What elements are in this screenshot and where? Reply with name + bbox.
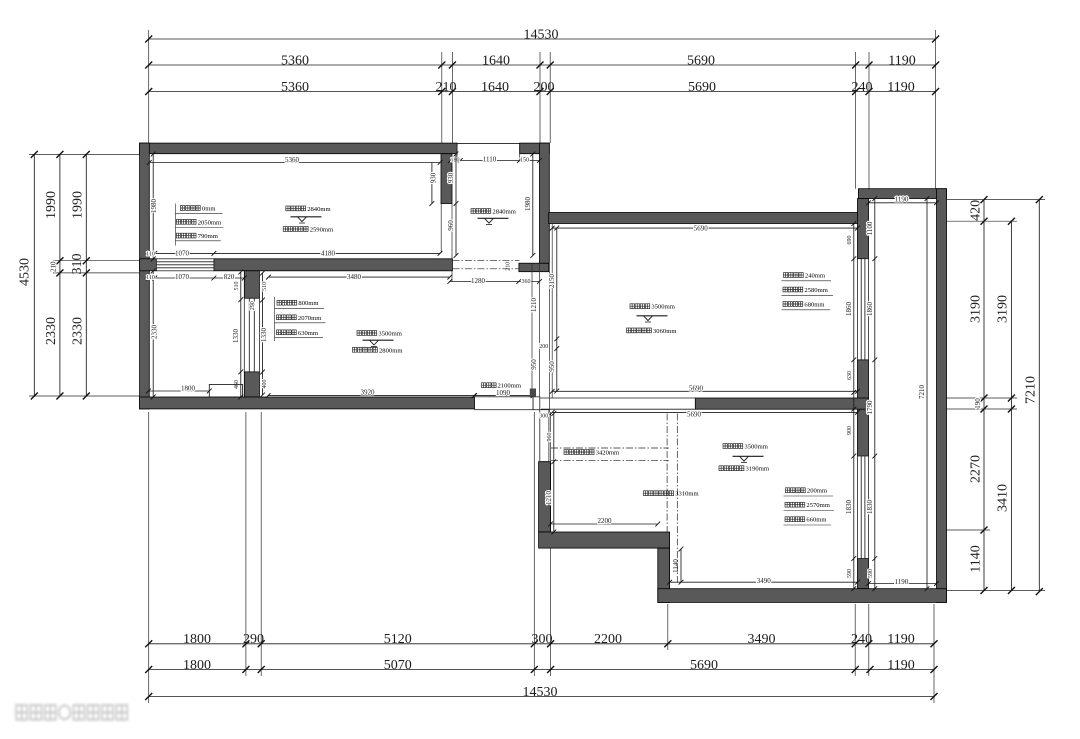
svg-text:660mm: 660mm xyxy=(806,517,827,524)
svg-text:2270: 2270 xyxy=(968,455,983,483)
svg-text:290: 290 xyxy=(250,301,256,310)
svg-text:5360: 5360 xyxy=(281,80,309,95)
svg-text:4180: 4180 xyxy=(321,250,336,258)
svg-text:400: 400 xyxy=(262,380,268,389)
svg-text:790mm: 790mm xyxy=(198,233,219,240)
svg-text:960: 960 xyxy=(447,220,455,231)
svg-text:7210: 7210 xyxy=(918,385,926,400)
svg-text:240: 240 xyxy=(851,632,872,647)
svg-text:1640: 1640 xyxy=(481,80,509,95)
svg-text:1800: 1800 xyxy=(183,658,211,673)
svg-text:3310mm: 3310mm xyxy=(675,491,699,498)
svg-text:1800: 1800 xyxy=(181,385,196,393)
svg-text:930: 930 xyxy=(447,172,455,183)
svg-text:1070: 1070 xyxy=(175,250,190,258)
svg-text:1070: 1070 xyxy=(175,273,190,281)
svg-text:2330: 2330 xyxy=(70,317,85,345)
svg-text:3500mm: 3500mm xyxy=(378,331,402,338)
svg-text:2570mm: 2570mm xyxy=(806,502,830,509)
svg-text:300: 300 xyxy=(539,414,548,420)
svg-text:3490: 3490 xyxy=(757,577,772,585)
svg-text:510: 510 xyxy=(262,282,268,291)
svg-text:950: 950 xyxy=(548,361,556,372)
svg-text:800mm: 800mm xyxy=(298,300,319,307)
svg-text:200mm: 200mm xyxy=(807,488,828,495)
svg-text:1800: 1800 xyxy=(183,632,211,647)
svg-text:690: 690 xyxy=(847,236,853,245)
svg-text:14530: 14530 xyxy=(524,27,559,42)
svg-text:5120: 5120 xyxy=(384,632,412,647)
svg-text:510: 510 xyxy=(234,282,240,291)
svg-text:680mm: 680mm xyxy=(804,302,825,309)
svg-text:5690: 5690 xyxy=(694,224,709,232)
svg-text:2330: 2330 xyxy=(151,325,159,340)
svg-text:3420mm: 3420mm xyxy=(596,450,620,457)
svg-text:4530: 4530 xyxy=(18,258,33,286)
svg-text:2840mm: 2840mm xyxy=(307,206,331,213)
svg-text:5690: 5690 xyxy=(690,658,718,673)
svg-text:630mm: 630mm xyxy=(298,330,319,337)
svg-text:2840mm: 2840mm xyxy=(492,209,516,216)
svg-text:1830: 1830 xyxy=(845,500,853,515)
svg-text:5070: 5070 xyxy=(384,658,412,673)
svg-text:1190: 1190 xyxy=(887,632,914,647)
svg-text:1790: 1790 xyxy=(866,400,874,415)
svg-text:200: 200 xyxy=(539,344,548,350)
svg-text:110: 110 xyxy=(146,275,155,281)
svg-text:630: 630 xyxy=(847,371,853,380)
svg-text:1140: 1140 xyxy=(672,559,680,573)
svg-text:1190: 1190 xyxy=(895,196,909,204)
svg-text:590: 590 xyxy=(868,569,874,578)
svg-text:5690: 5690 xyxy=(687,411,702,419)
svg-text:5690: 5690 xyxy=(688,80,716,95)
svg-text:5360: 5360 xyxy=(281,53,309,68)
svg-text:1330: 1330 xyxy=(260,328,268,343)
svg-text:1090: 1090 xyxy=(496,389,511,397)
svg-text:210: 210 xyxy=(506,262,512,271)
svg-text:930: 930 xyxy=(429,172,437,183)
svg-text:3190mm: 3190mm xyxy=(746,466,770,473)
svg-text:0mm: 0mm xyxy=(202,206,216,213)
svg-text:820: 820 xyxy=(224,273,235,281)
svg-text:1210: 1210 xyxy=(530,298,538,313)
svg-text:200: 200 xyxy=(534,80,555,95)
svg-text:240mm: 240mm xyxy=(805,273,826,280)
svg-text:180: 180 xyxy=(451,158,460,164)
svg-text:1110: 1110 xyxy=(483,156,497,164)
svg-text:150: 150 xyxy=(520,158,529,164)
svg-text:1860: 1860 xyxy=(845,302,853,317)
svg-text:3060mm: 3060mm xyxy=(653,328,677,335)
svg-text:1190: 1190 xyxy=(887,658,914,673)
svg-text:290: 290 xyxy=(243,632,264,647)
svg-text:5690: 5690 xyxy=(687,53,715,68)
svg-text:2150: 2150 xyxy=(548,274,556,289)
svg-text:2070mm: 2070mm xyxy=(298,315,322,322)
svg-text:1280: 1280 xyxy=(471,277,486,285)
svg-text:300: 300 xyxy=(532,632,553,647)
svg-text:1980: 1980 xyxy=(150,199,158,214)
svg-text:3410: 3410 xyxy=(996,484,1011,512)
svg-text:1980: 1980 xyxy=(524,197,532,212)
svg-text:3190: 3190 xyxy=(968,295,983,323)
svg-text:240: 240 xyxy=(852,80,873,95)
svg-text:3500mm: 3500mm xyxy=(744,444,768,451)
svg-text:590: 590 xyxy=(847,569,853,578)
svg-text:1860: 1860 xyxy=(866,302,874,317)
svg-text:3490: 3490 xyxy=(748,632,776,647)
svg-text:110: 110 xyxy=(146,252,155,258)
svg-text:1210: 1210 xyxy=(545,491,553,506)
svg-text:210: 210 xyxy=(436,80,457,95)
svg-text:1190: 1190 xyxy=(888,53,915,68)
svg-text:3480: 3480 xyxy=(347,273,362,281)
svg-text:190: 190 xyxy=(974,398,982,409)
svg-text:310: 310 xyxy=(70,254,85,275)
svg-text:2580mm: 2580mm xyxy=(804,287,828,294)
svg-text:360: 360 xyxy=(522,279,531,285)
svg-text:1100: 1100 xyxy=(866,221,874,235)
svg-text:1330: 1330 xyxy=(232,329,240,344)
svg-text:3920: 3920 xyxy=(361,388,376,396)
svg-text:1990: 1990 xyxy=(70,191,85,219)
svg-text:2200: 2200 xyxy=(594,632,622,647)
svg-text:5690: 5690 xyxy=(689,385,704,393)
svg-text:1990: 1990 xyxy=(44,191,59,219)
svg-text:2590mm: 2590mm xyxy=(310,227,334,234)
svg-text:3500mm: 3500mm xyxy=(651,304,675,311)
svg-text:900: 900 xyxy=(847,426,853,435)
svg-text:2800mm: 2800mm xyxy=(379,347,403,354)
svg-text:950: 950 xyxy=(530,359,538,370)
svg-text:960: 960 xyxy=(547,433,553,442)
svg-text:2050mm: 2050mm xyxy=(198,219,222,226)
svg-text:1190: 1190 xyxy=(887,80,914,95)
svg-text:1830: 1830 xyxy=(866,500,874,515)
svg-text:420: 420 xyxy=(968,200,983,221)
svg-text:2200: 2200 xyxy=(598,517,613,525)
svg-text:1640: 1640 xyxy=(482,53,510,68)
svg-text:5360: 5360 xyxy=(285,156,300,164)
svg-text:1190: 1190 xyxy=(895,578,909,586)
svg-text:3190: 3190 xyxy=(996,295,1011,323)
svg-text:14530: 14530 xyxy=(523,685,558,700)
svg-text:1140: 1140 xyxy=(968,545,983,572)
svg-text:210: 210 xyxy=(50,261,58,272)
svg-text:2330: 2330 xyxy=(44,317,59,345)
svg-text:7210: 7210 xyxy=(1024,376,1039,404)
